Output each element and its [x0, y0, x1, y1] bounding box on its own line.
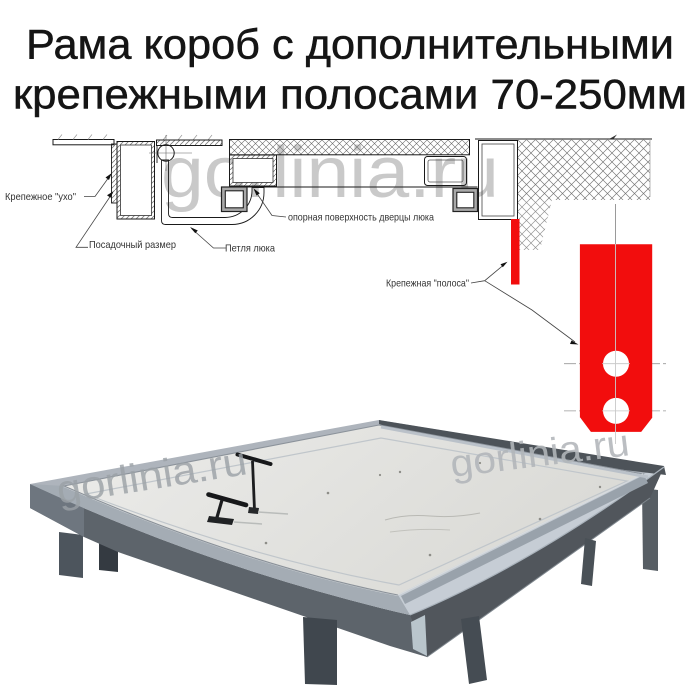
svg-text:крепежными полосами 70-250мм: крепежными полосами 70-250мм [13, 71, 687, 118]
svg-text:Крепежное "ухо": Крепежное "ухо" [5, 191, 76, 203]
svg-text:Посадочный размер: Посадочный размер [89, 239, 176, 251]
svg-text:опорная поверхность дверцы люк: опорная поверхность дверцы люка [288, 212, 434, 224]
svg-text:Рама короб с дополнительными: Рама короб с дополнительными [26, 21, 674, 68]
svg-text:Крепежная "полоса": Крепежная "полоса" [386, 278, 469, 290]
svg-text:Петля люка: Петля люка [225, 243, 275, 255]
